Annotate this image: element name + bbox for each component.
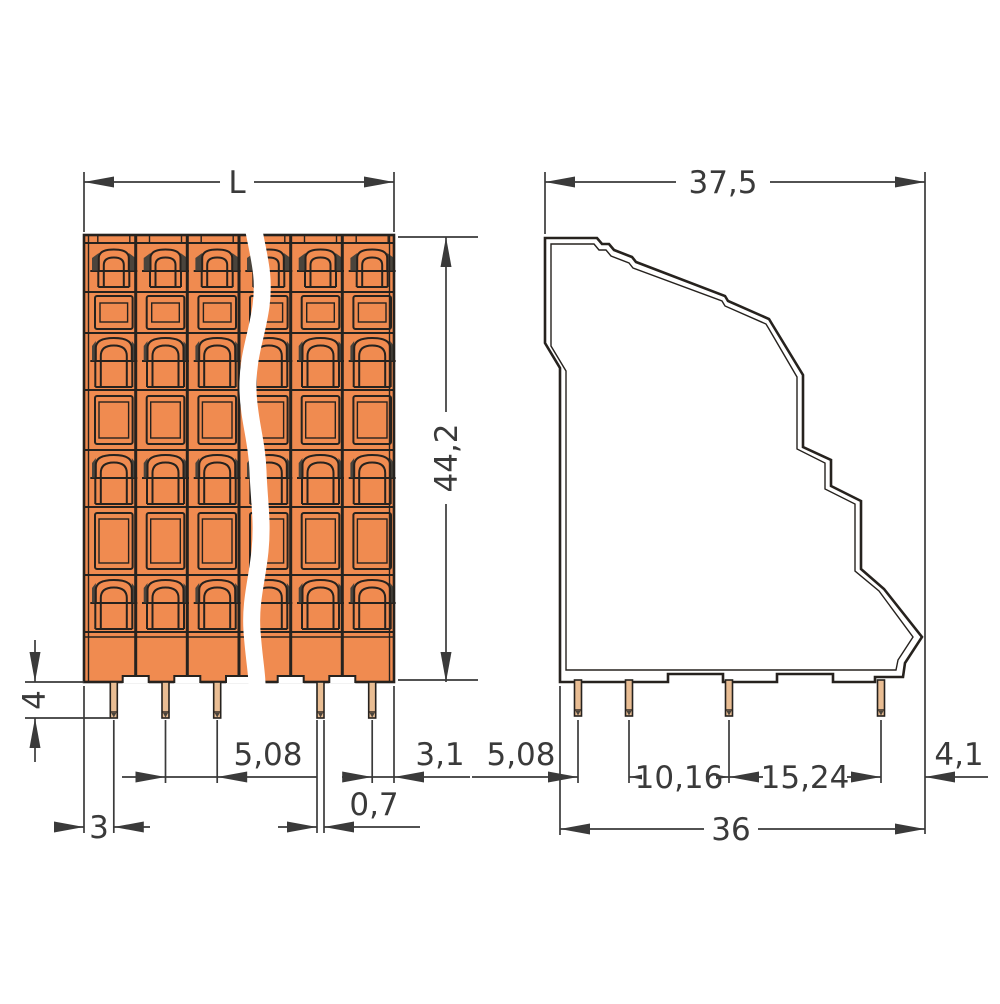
- terminal-block-dimension-drawing: L 44,2 4 5,08 3,1: [0, 0, 1000, 1000]
- dim-label-pin-to-edge-right: 4,1: [934, 737, 983, 773]
- dim-label-overall-depth: 37,5: [688, 165, 757, 201]
- dim-label-pin2-to-pin3: 15,24: [761, 760, 850, 796]
- front-view: [84, 226, 396, 718]
- dim-label-pin-pitch: 5,08: [233, 737, 302, 773]
- dim-label-edge-right: 3,1: [415, 737, 464, 773]
- dim-label-pin1-to-pin2: 10,16: [635, 760, 724, 796]
- side-solder-pins: [575, 680, 885, 716]
- side-body-inner-line: [551, 244, 913, 670]
- dim-label-overall-height: 44,2: [429, 423, 465, 492]
- dim-label-edge-left: 3: [89, 810, 109, 846]
- dim-label-edge-to-pin1: 5,08: [486, 737, 555, 773]
- front-solder-pins: [110, 682, 375, 718]
- dim-label-overall-width: L: [228, 165, 246, 201]
- side-dimensions: 37,5 5,08 10,16 15,24 4,1 36: [472, 164, 988, 848]
- drawing-canvas: L 44,2 4 5,08 3,1: [0, 0, 1000, 1000]
- side-body-outline: [545, 238, 922, 682]
- side-view: [545, 238, 922, 716]
- dim-label-pin-width: 0,7: [349, 787, 398, 823]
- dim-label-pin-length: 4: [17, 690, 53, 710]
- dim-label-pin-span-total: 36: [711, 812, 750, 848]
